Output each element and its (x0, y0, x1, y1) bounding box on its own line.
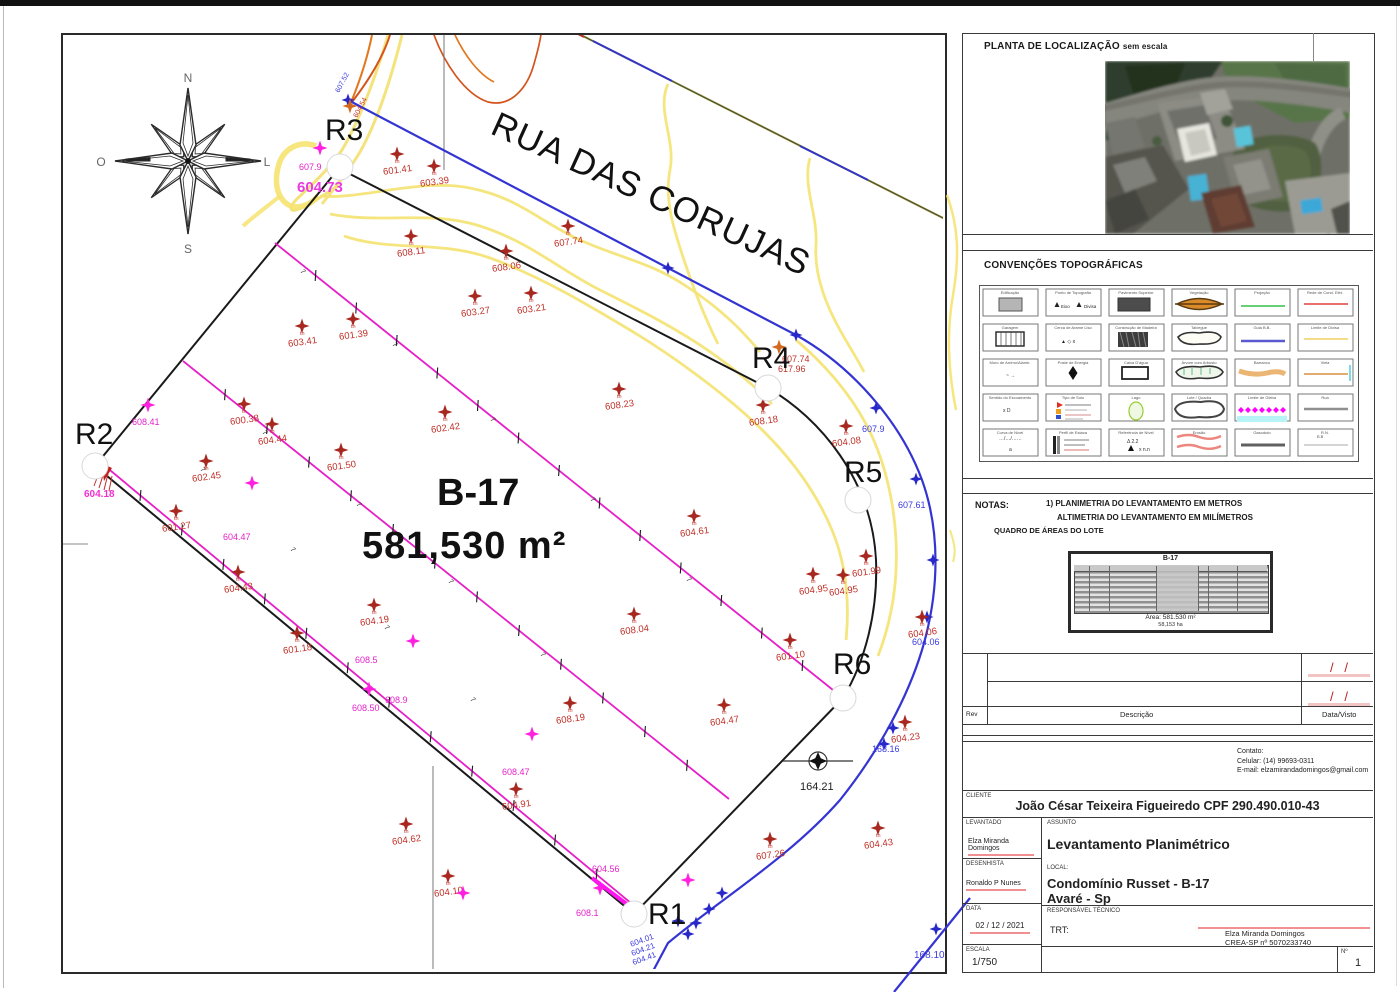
svg-text:Lago: Lago (1132, 395, 1142, 400)
svg-text:…/…/……: …/…/…… (999, 436, 1022, 442)
svg-text:Limite de Divisa: Limite de Divisa (1311, 325, 1340, 330)
svg-text:607.74: 607.74 (553, 235, 583, 250)
svg-text:RUA DAS CORUJAS: RUA DAS CORUJAS (486, 105, 817, 284)
svg-text:7: 7 (447, 578, 455, 587)
svg-text:604.23: 604.23 (890, 731, 920, 746)
svg-text:Tipo de Solo: Tipo de Solo (1062, 395, 1085, 400)
svg-text:R6: R6 (833, 648, 871, 681)
svg-text:604.56: 604.56 (592, 864, 620, 874)
svg-text:R3: R3 (325, 114, 363, 147)
svg-text:L: L (264, 155, 271, 169)
svg-text:Vegetação: Vegetação (1190, 290, 1210, 295)
svg-text:607.9: 607.9 (862, 424, 885, 434)
svg-text:Rua: Rua (1321, 395, 1329, 400)
svg-text:603.41: 603.41 (287, 335, 317, 350)
svg-text:n.n: n.n (1317, 434, 1324, 439)
svg-text:608.23: 608.23 (604, 398, 634, 413)
svg-text:Projeção: Projeção (1254, 290, 1271, 295)
svg-text:608.04: 608.04 (619, 623, 649, 638)
svg-text:Lote / Quadra: Lote / Quadra (1187, 395, 1212, 400)
svg-text:604.61: 604.61 (679, 525, 709, 540)
svg-text:Ponto de Topografia: Ponto de Topografia (1055, 290, 1092, 295)
svg-text:608.5: 608.5 (355, 655, 378, 665)
svg-text:Curva de Nível: Curva de Nível (997, 430, 1024, 435)
svg-text:608.19: 608.19 (555, 712, 585, 727)
svg-text:Talvegue: Talvegue (1191, 325, 1208, 330)
svg-text:164.21: 164.21 (800, 781, 834, 793)
svg-text:604.95: 604.95 (828, 584, 858, 599)
svg-text:Edificação: Edificação (1001, 290, 1020, 295)
svg-text:601.18: 601.18 (282, 642, 312, 657)
svg-text:608.06: 608.06 (491, 260, 521, 275)
svg-text:a: a (1009, 447, 1012, 453)
svg-text:x D: x D (1003, 408, 1011, 414)
svg-text:R4: R4 (752, 342, 790, 375)
svg-text:Árvore com Arbusto: Árvore com Arbusto (1181, 360, 1217, 365)
svg-text:608.50: 608.50 (352, 703, 380, 713)
svg-text:Poste de Energia: Poste de Energia (1058, 360, 1089, 365)
svg-text:608.11: 608.11 (396, 245, 426, 260)
svg-text:R5: R5 (844, 456, 882, 489)
svg-text:604.08: 604.08 (831, 435, 861, 450)
svg-text:604.47: 604.47 (223, 532, 251, 542)
svg-text:604.95: 604.95 (798, 583, 828, 598)
svg-text:601.39: 601.39 (338, 328, 368, 343)
svg-text:603.27: 603.27 (460, 305, 490, 320)
svg-text:R1: R1 (648, 898, 686, 931)
svg-text:7: 7 (299, 268, 307, 277)
svg-text:Viela: Viela (1321, 360, 1331, 365)
svg-text:7: 7 (539, 651, 547, 660)
svg-text:581,530 m²: 581,530 m² (362, 525, 566, 567)
svg-text:604.73: 604.73 (297, 179, 343, 196)
svg-text:608.9: 608.9 (385, 695, 408, 705)
svg-text:Δ 2.2: Δ 2.2 (1127, 439, 1139, 445)
svg-text:Barranco: Barranco (1254, 360, 1271, 365)
svg-text:7: 7 (391, 341, 399, 350)
svg-text:Cerca de Arame Liso: Cerca de Arame Liso (1054, 325, 1092, 330)
svg-text:Construção de Madeira: Construção de Madeira (1115, 325, 1157, 330)
svg-text:Caixa D'água: Caixa D'água (1124, 360, 1149, 365)
svg-text:x n.n: x n.n (1139, 447, 1150, 453)
svg-text:Referência de Nível: Referência de Nível (1118, 430, 1153, 435)
svg-text:601.41: 601.41 (382, 163, 412, 178)
svg-text:▲ ◇ x: ▲ ◇ x (1061, 339, 1076, 345)
svg-text:B-17: B-17 (437, 472, 519, 514)
svg-text:168.10: 168.10 (914, 950, 945, 961)
svg-text:607.52: 607.52 (335, 72, 351, 94)
svg-text:O: O (96, 155, 105, 169)
svg-text:S: S (184, 242, 192, 256)
svg-text:608.41: 608.41 (132, 417, 160, 427)
svg-text:N: N (184, 71, 193, 85)
svg-text:7: 7 (469, 696, 477, 705)
svg-text:604.62: 604.62 (391, 833, 421, 848)
svg-text:Sentido do Escoamento: Sentido do Escoamento (989, 395, 1032, 400)
svg-text:607.61: 607.61 (898, 500, 926, 510)
svg-text:602.45: 602.45 (191, 470, 221, 485)
svg-text:Gasoduto: Gasoduto (1253, 430, 1271, 435)
svg-text:603.21: 603.21 (516, 302, 546, 317)
svg-text:7: 7 (685, 576, 693, 585)
svg-text:Garagem: Garagem (1002, 325, 1019, 330)
svg-text:604.18: 604.18 (84, 489, 115, 500)
svg-text:Guia B.B.: Guia B.B. (1253, 325, 1270, 330)
svg-text:7: 7 (289, 546, 297, 555)
svg-text:604.43: 604.43 (863, 837, 893, 852)
svg-text:608.1: 608.1 (576, 908, 599, 918)
svg-text:R2: R2 (75, 418, 113, 451)
svg-text:603.39: 603.39 (419, 175, 449, 190)
svg-text:601.50: 601.50 (326, 459, 356, 474)
svg-text:Divisa: Divisa (1084, 304, 1097, 309)
svg-text:600.38: 600.38 (229, 413, 259, 428)
svg-text:Rede de Cond. Elét.: Rede de Cond. Elét. (1307, 290, 1343, 295)
svg-text:Muro de Arrimo/Alamb.: Muro de Arrimo/Alamb. (990, 360, 1031, 365)
svg-text:Eixo: Eixo (1061, 304, 1070, 309)
svg-text:608.47: 608.47 (502, 767, 530, 777)
svg-text:602.42: 602.42 (430, 421, 460, 436)
svg-text:601.27: 601.27 (161, 520, 191, 535)
svg-text:Perfil de Estaca: Perfil de Estaca (1059, 430, 1088, 435)
svg-text:608.18: 608.18 (748, 414, 778, 429)
svg-text:601.99: 601.99 (851, 565, 881, 580)
svg-text:Erosão: Erosão (1193, 430, 1206, 435)
svg-text:604.47: 604.47 (709, 714, 739, 729)
svg-text:~ →: ~ → (1006, 373, 1015, 379)
svg-text:607.9: 607.9 (299, 162, 322, 172)
svg-text:607.26: 607.26 (755, 848, 785, 863)
svg-text:168.16: 168.16 (872, 744, 900, 754)
svg-text:601.10: 601.10 (775, 649, 805, 664)
svg-text:Limite de Gleba: Limite de Gleba (1248, 395, 1277, 400)
svg-text:Pavimento Superior: Pavimento Superior (1118, 290, 1154, 295)
